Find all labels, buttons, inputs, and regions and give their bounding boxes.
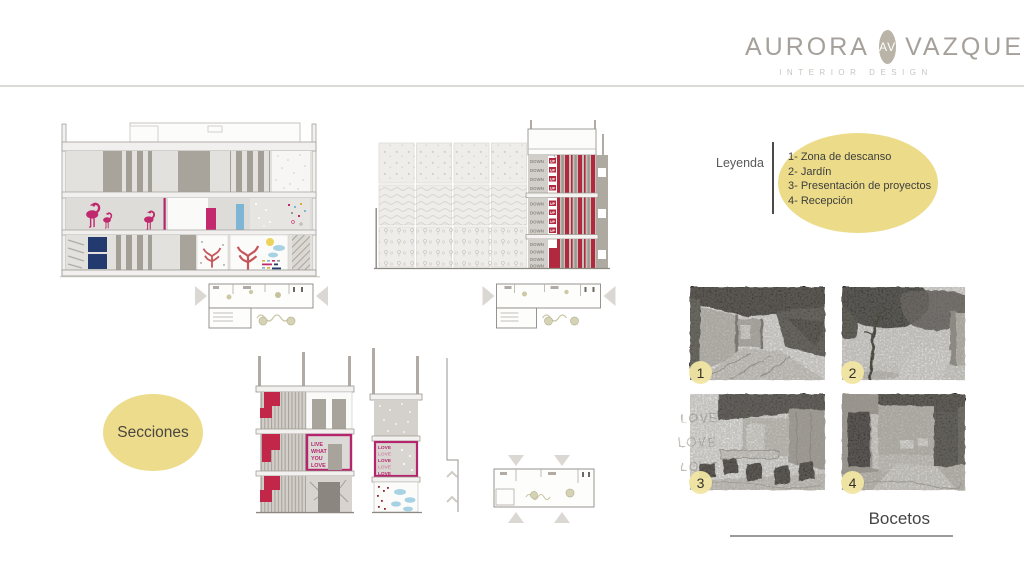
sketch-4: 4 [842, 394, 965, 490]
floor-plan-1 [193, 280, 330, 332]
section-drawing-2: DOWN DOWN DOWN DOWN UP UP UP UP [370, 116, 618, 284]
svg-text:YOU: YOU [311, 456, 323, 462]
stair-floor-3: DOWN DOWN DOWN DOWN UP [528, 239, 606, 269]
svg-text:DOWN: DOWN [530, 186, 544, 191]
sketch-number-badge: 3 [689, 471, 712, 494]
floor-plan-2 [478, 280, 620, 332]
svg-text:UP: UP [550, 229, 556, 233]
svg-text:UP: UP [550, 168, 556, 172]
svg-text:LOVE: LOVE [378, 445, 392, 451]
sketches-title: Bocetos [790, 509, 930, 529]
svg-text:UP: UP [550, 177, 556, 181]
svg-text:DOWN: DOWN [530, 159, 544, 164]
legend-item: 2- Jardín [788, 165, 931, 180]
legend-item: 3- Presentación de proyectos [788, 179, 931, 194]
legend-item: 4- Recepción [788, 194, 931, 209]
stair-tower: DOWN DOWN DOWN DOWN UP UP UP UP [526, 120, 608, 269]
love-text: LOVE LOVE LOVE LOVE LOVE [378, 445, 392, 477]
sketch-3: LOVE LOVE LOVE [690, 394, 825, 490]
section-drawing-1 [60, 118, 320, 280]
svg-text:DOWN: DOWN [530, 242, 544, 247]
svg-text:UP: UP [550, 202, 556, 206]
svg-text:WHAT: WHAT [311, 449, 327, 455]
sketch-2: 2 [842, 287, 965, 380]
svg-text:UP: UP [550, 159, 556, 163]
brand-tagline: INTERIOR DESIGN [745, 68, 967, 77]
svg-text:UP: UP [550, 220, 556, 224]
svg-text:DOWN: DOWN [530, 177, 544, 182]
sketch-number-badge: 1 [689, 361, 712, 384]
slide-canvas: AURORA AV VAZQUEZ INTERIOR DESIGN [0, 0, 1024, 576]
brand-last-name: VAZQUEZ [905, 33, 1024, 62]
section-drawing-4: LOVE LOVE LOVE LOVE LOVE [366, 346, 466, 516]
svg-text:LOVE: LOVE [378, 471, 392, 477]
legend-divider [772, 142, 774, 214]
svg-text:LOVE: LOVE [378, 465, 392, 471]
stair-floor-2: DOWN DOWN DOWN DOWN UP UP UP UP [528, 198, 606, 235]
svg-text:DOWN: DOWN [530, 202, 544, 207]
brand-logo: AURORA AV VAZQUEZ INTERIOR DESIGN [745, 30, 967, 77]
legend-item: 1- Zona de descanso [788, 150, 931, 165]
sketch-number-badge: 4 [841, 471, 864, 494]
svg-text:LIVE: LIVE [311, 442, 323, 448]
section-drawing-3: LIVE WHAT YOU LOVE [254, 350, 356, 514]
svg-text:LOVE: LOVE [378, 458, 392, 464]
svg-text:UP: UP [550, 211, 556, 215]
svg-text:DOWN: DOWN [530, 264, 544, 269]
legend-label: Leyenda [716, 156, 764, 170]
brand-monogram-icon: AV [879, 30, 896, 64]
sketches-title-underline [730, 535, 953, 537]
legend-bubble: 1- Zona de descanso 2- Jardín 3- Present… [778, 133, 938, 233]
sketch-number-badge: 2 [841, 361, 864, 384]
svg-text:LOVE: LOVE [311, 463, 326, 469]
svg-text:UP: UP [550, 186, 556, 190]
svg-text:LOVE: LOVE [378, 452, 392, 458]
svg-text:DOWN: DOWN [530, 220, 544, 225]
svg-text:DOWN: DOWN [530, 257, 544, 262]
sketch-1: 1 [690, 287, 825, 380]
floor-plan-3 [486, 453, 604, 525]
svg-text:UP: UP [550, 243, 556, 247]
svg-text:DOWN: DOWN [530, 211, 544, 216]
brand-first-name: AURORA [745, 33, 870, 62]
stair-floor-1: DOWN DOWN DOWN DOWN UP UP UP UP [528, 155, 606, 193]
svg-text:DOWN: DOWN [530, 168, 544, 173]
sections-bubble: Secciones [103, 394, 203, 471]
sections-bubble-label: Secciones [117, 424, 189, 442]
svg-text:DOWN: DOWN [530, 229, 544, 234]
header-divider [0, 85, 1024, 87]
pattern-panel-grid [379, 143, 527, 267]
svg-text:DOWN: DOWN [530, 250, 544, 255]
